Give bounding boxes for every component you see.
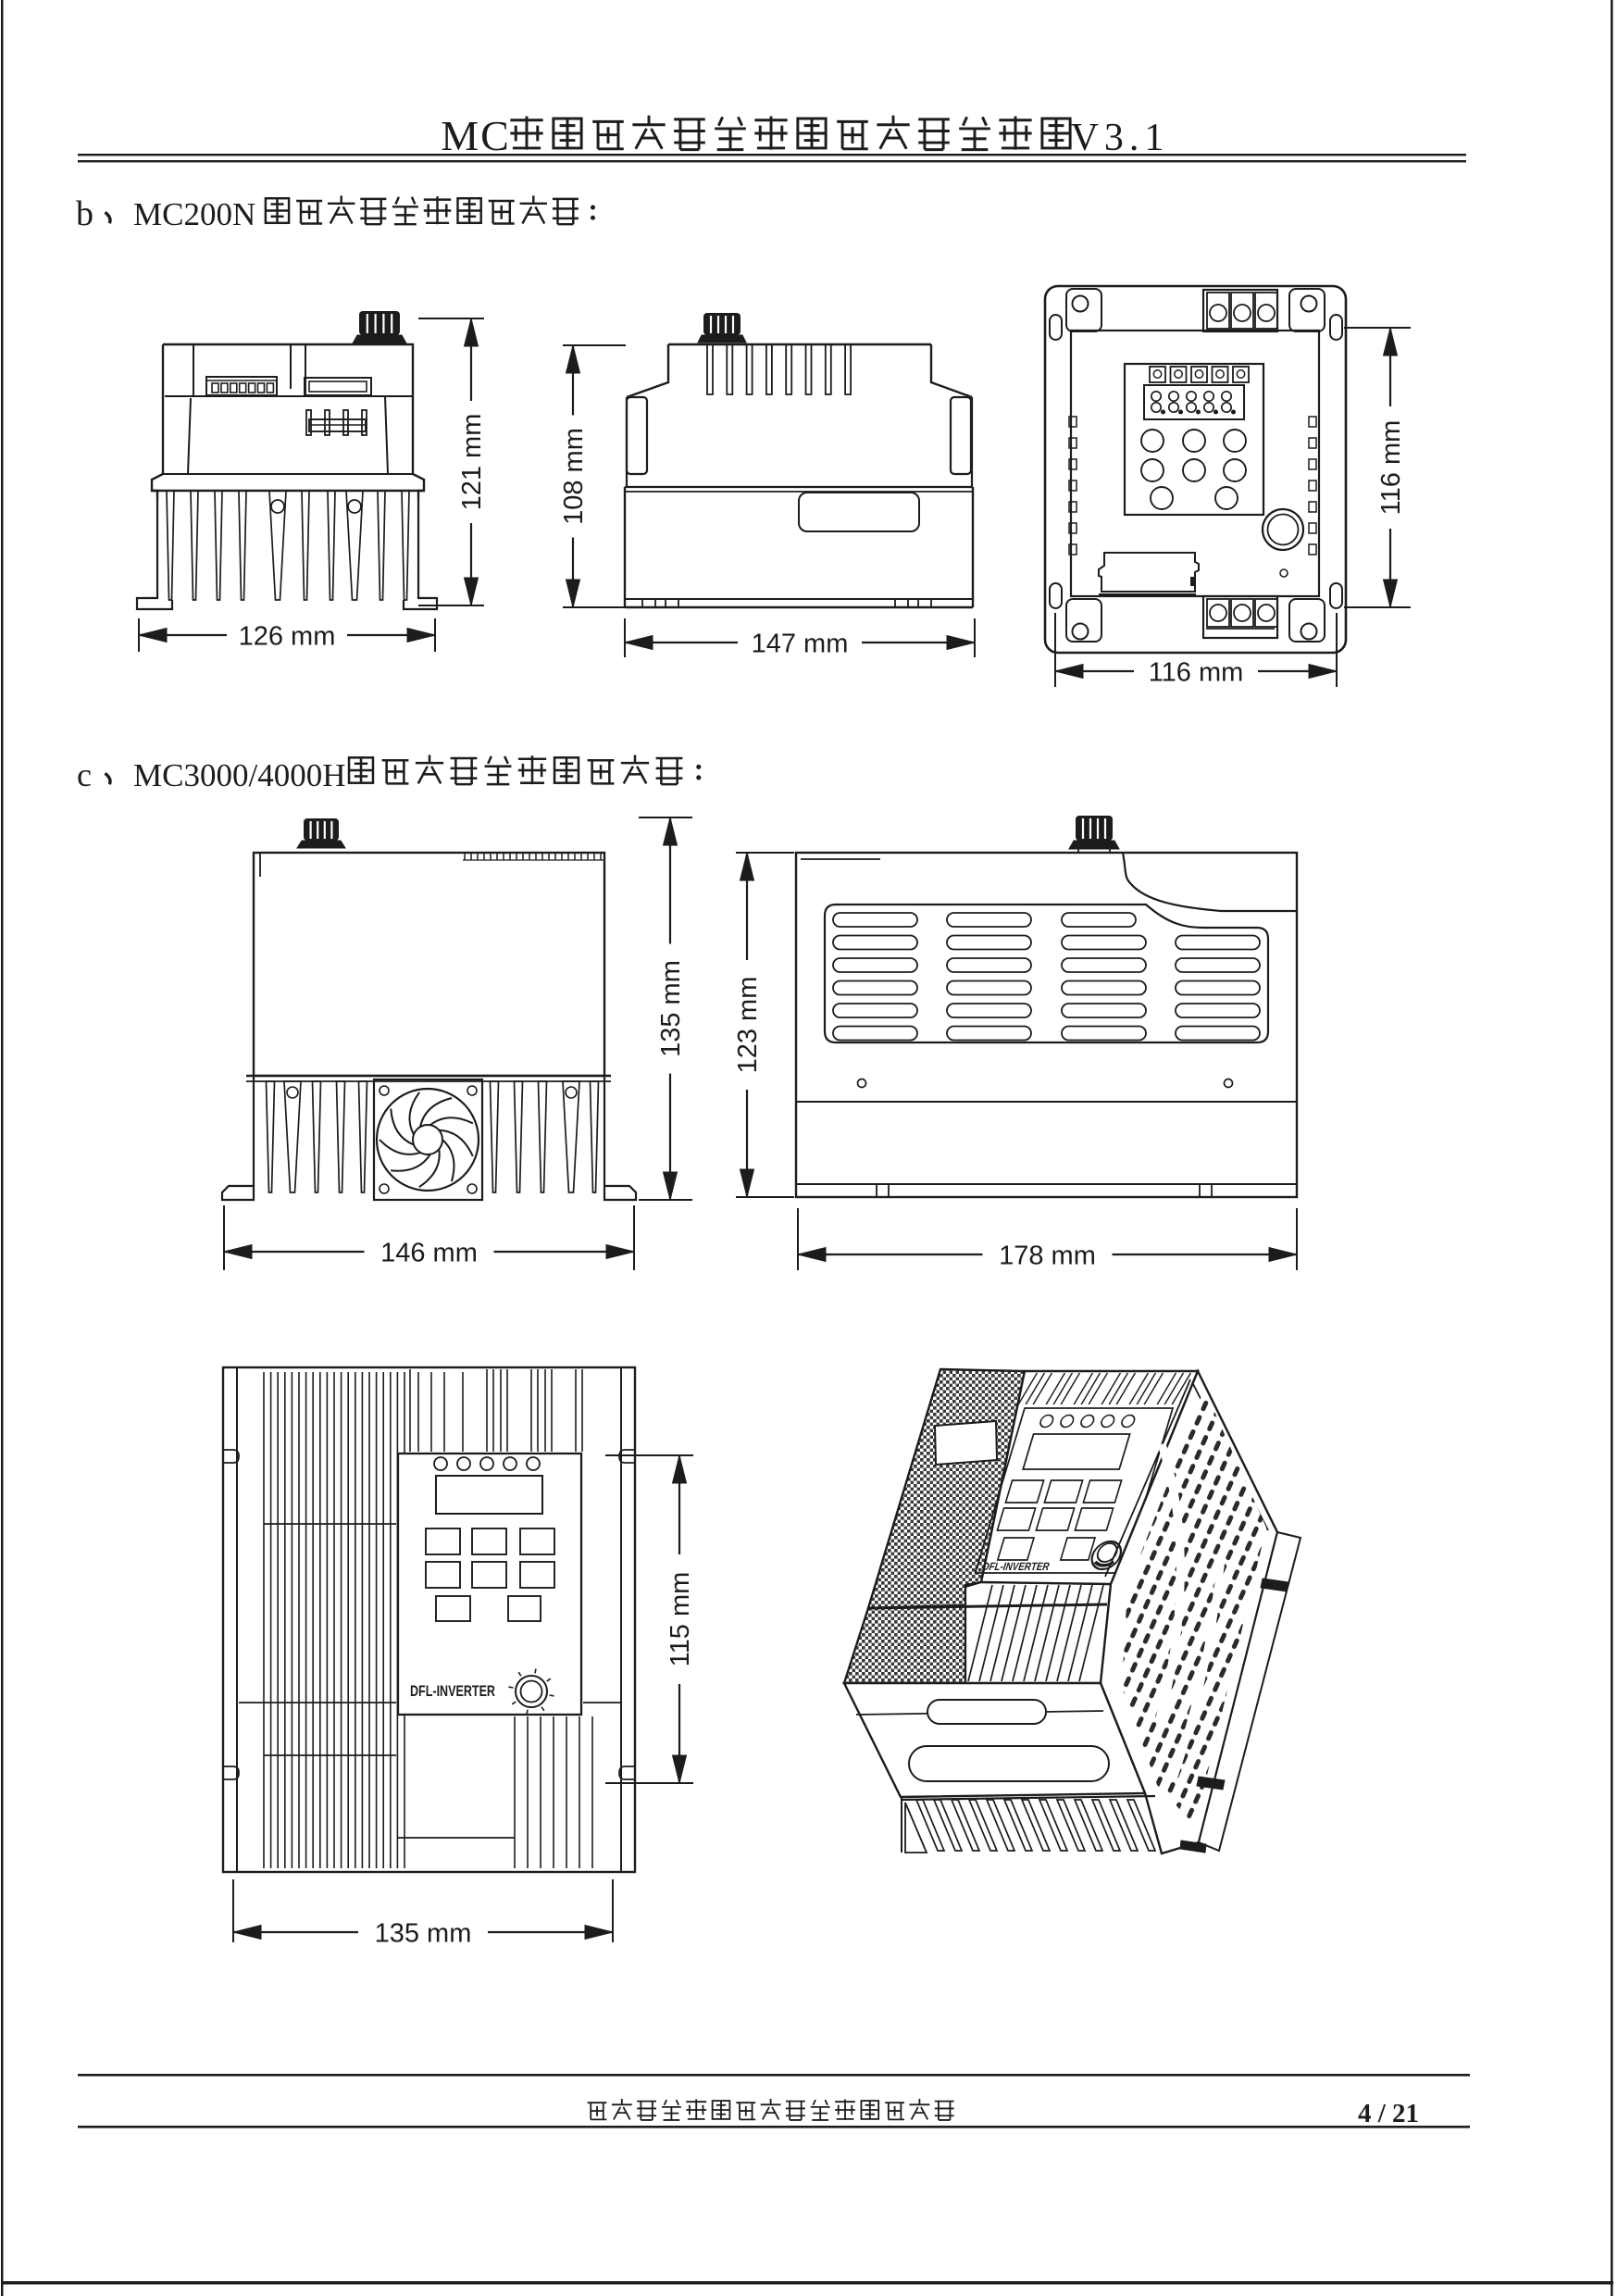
svg-text:147 mm: 147 mm <box>752 629 849 658</box>
svg-text:116 mm: 116 mm <box>1376 420 1406 516</box>
svg-text:135 mm: 135 mm <box>656 960 686 1057</box>
svg-text:135 mm: 135 mm <box>375 1918 472 1948</box>
svg-text:MC: MC <box>441 112 511 159</box>
svg-text:116 mm: 116 mm <box>1149 657 1244 687</box>
svg-text:115 mm: 115 mm <box>666 1572 695 1667</box>
svg-text:121 mm: 121 mm <box>457 414 487 511</box>
svg-text:c: c <box>77 756 92 793</box>
svg-text:MC3000/4000H: MC3000/4000H <box>133 757 345 793</box>
svg-text:DFL-INVERTER: DFL-INVERTER <box>981 1560 1052 1573</box>
svg-text:4 / 21: 4 / 21 <box>1358 2099 1419 2128</box>
svg-text:123 mm: 123 mm <box>733 977 763 1074</box>
svg-text:108 mm: 108 mm <box>559 428 589 525</box>
svg-text:126 mm: 126 mm <box>239 621 336 651</box>
svg-text:178 mm: 178 mm <box>999 1241 1096 1270</box>
svg-text:V3.1: V3.1 <box>1071 117 1170 159</box>
svg-text:MC200N: MC200N <box>133 196 255 232</box>
svg-text:b: b <box>76 194 93 233</box>
svg-text:146 mm: 146 mm <box>380 1238 478 1267</box>
svg-text:DFL-INVERTER: DFL-INVERTER <box>410 1682 495 1700</box>
